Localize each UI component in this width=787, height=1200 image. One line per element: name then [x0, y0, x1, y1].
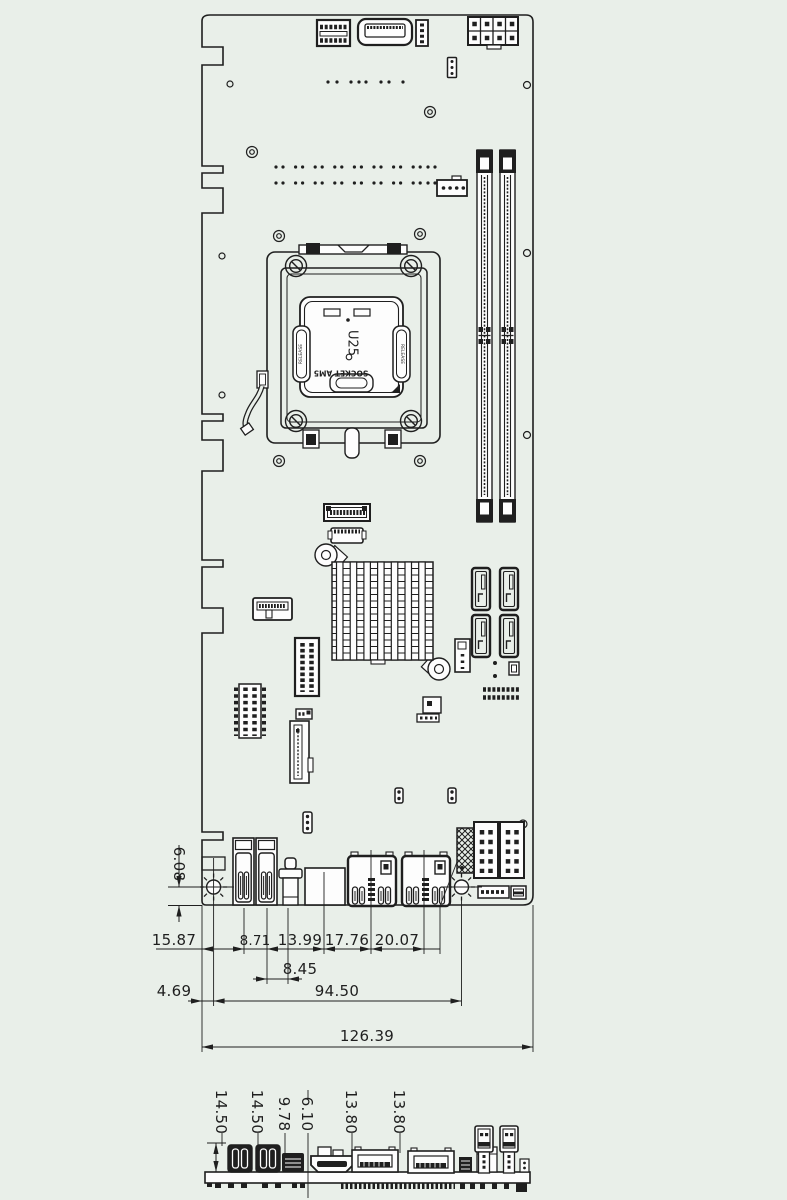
dim-side-4: 6.10: [298, 1097, 316, 1132]
hdmi-port-side: [311, 1147, 353, 1172]
smd-header-2x8: [236, 684, 264, 738]
dim-side-1: 14.50: [212, 1090, 230, 1134]
sata-ports: [472, 568, 518, 657]
edge-part-side: [520, 1159, 529, 1172]
pcb-mechanical-drawing: RELEASE RELEASE U25 SOCKET AM5: [0, 0, 787, 1200]
hdmi-port-top: [305, 868, 345, 905]
dim-chain-5: 20.07: [375, 931, 419, 949]
sata-port-3: [472, 615, 490, 657]
socket-release-lever: [241, 371, 268, 435]
dimm-slot-1: [476, 150, 493, 522]
through-hole-pins: [207, 1183, 527, 1192]
jumper-2pin-b: [448, 788, 456, 803]
3pin-header-top: [448, 58, 457, 78]
board-to-board-connector: [324, 504, 370, 521]
lan-port-side-2: [408, 1148, 454, 1173]
m2-slot-vertical: [290, 721, 313, 783]
hatched-connector: [457, 828, 474, 873]
usb-port-side-2: [256, 1145, 280, 1172]
lan-port-1: [348, 852, 396, 906]
dim-hole-to-edge: 6.08: [170, 847, 188, 882]
pcb-bar: [205, 1172, 530, 1183]
jumper-3pin: [303, 812, 312, 833]
box-header-2x10: [295, 638, 319, 696]
socket-latch-left: RELEASE: [293, 326, 310, 382]
atx-power-connector-8pin: [468, 17, 518, 49]
small-smd-part: [509, 662, 519, 675]
dim-chain-4: 17.76: [325, 931, 369, 949]
socket-latch-right: RELEASE: [393, 326, 410, 382]
small-connector-side: [459, 1157, 472, 1172]
dim-side-6: 13.80: [390, 1090, 408, 1134]
chipset-heatsink: [315, 544, 450, 680]
pin-header-2x8: [483, 690, 519, 698]
3pin-connector-small: [296, 709, 312, 719]
dim-side-2: 14.50: [248, 1090, 266, 1134]
voltage-regulator-part: [417, 697, 441, 722]
dim-chain-2: 8.71: [240, 933, 271, 949]
cpu-socket: RELEASE RELEASE U25 SOCKET AM5: [241, 229, 440, 467]
via-dot-row: [326, 80, 404, 83]
latch-right-label: RELEASE: [399, 344, 405, 364]
latch-left-label: RELEASE: [298, 344, 304, 364]
lan-port-side-1: [352, 1147, 398, 1172]
dim-side-5: 13.80: [342, 1090, 360, 1134]
dim-chain-1: 15.87: [152, 931, 196, 949]
socket-name-label: SOCKET AM5: [314, 369, 368, 378]
usb-vertical-2: [500, 1126, 518, 1173]
dim-hole-span: 94.50: [315, 982, 359, 1000]
socket-ref-designator: U25: [345, 330, 360, 356]
usb-stack-1: [233, 838, 254, 905]
audio-jack-side: [282, 1153, 304, 1172]
fan-header-4pin: [437, 176, 467, 196]
board-top-view: RELEASE RELEASE U25 SOCKET AM5: [152, 15, 533, 1052]
header-2x5-small: [478, 886, 509, 898]
sata-port-2: [500, 568, 518, 610]
dim-audio-offset: 8.45: [283, 960, 318, 978]
dim-chain-3: 13.99: [278, 931, 322, 949]
3pin-box-header: [455, 639, 470, 672]
dim-board-width: 126.39: [340, 1027, 394, 1045]
slim-display-connector: [358, 19, 412, 45]
4pin-vertical-header: [416, 20, 428, 46]
via-pair-rows: [274, 165, 436, 184]
usb-port-side-1: [228, 1145, 252, 1172]
sata-port-4: [500, 615, 518, 657]
board-side-view: 14.50 14.50 9.78 6.10 13.80 13.80: [205, 1090, 530, 1198]
audio-jack: [279, 858, 302, 905]
socket-bottom-bracket: [303, 428, 401, 458]
dim-side-3: 9.78: [275, 1097, 293, 1132]
usb-stack-2: [256, 838, 277, 905]
small-edge-connector: [511, 886, 526, 899]
dimm-slot-2: [499, 150, 516, 522]
jumper-2pin-a: [395, 788, 403, 803]
front-panel-pin-header: [317, 20, 350, 46]
ffc-connector: [328, 528, 366, 543]
socket-top-bracket: [299, 243, 407, 254]
dim-hole-inset: 4.69: [157, 982, 192, 1000]
box-header-a: [474, 822, 498, 878]
sata-port-1: [472, 568, 490, 610]
box-header-b: [500, 822, 524, 878]
m2-key-e-connector: [253, 598, 292, 620]
